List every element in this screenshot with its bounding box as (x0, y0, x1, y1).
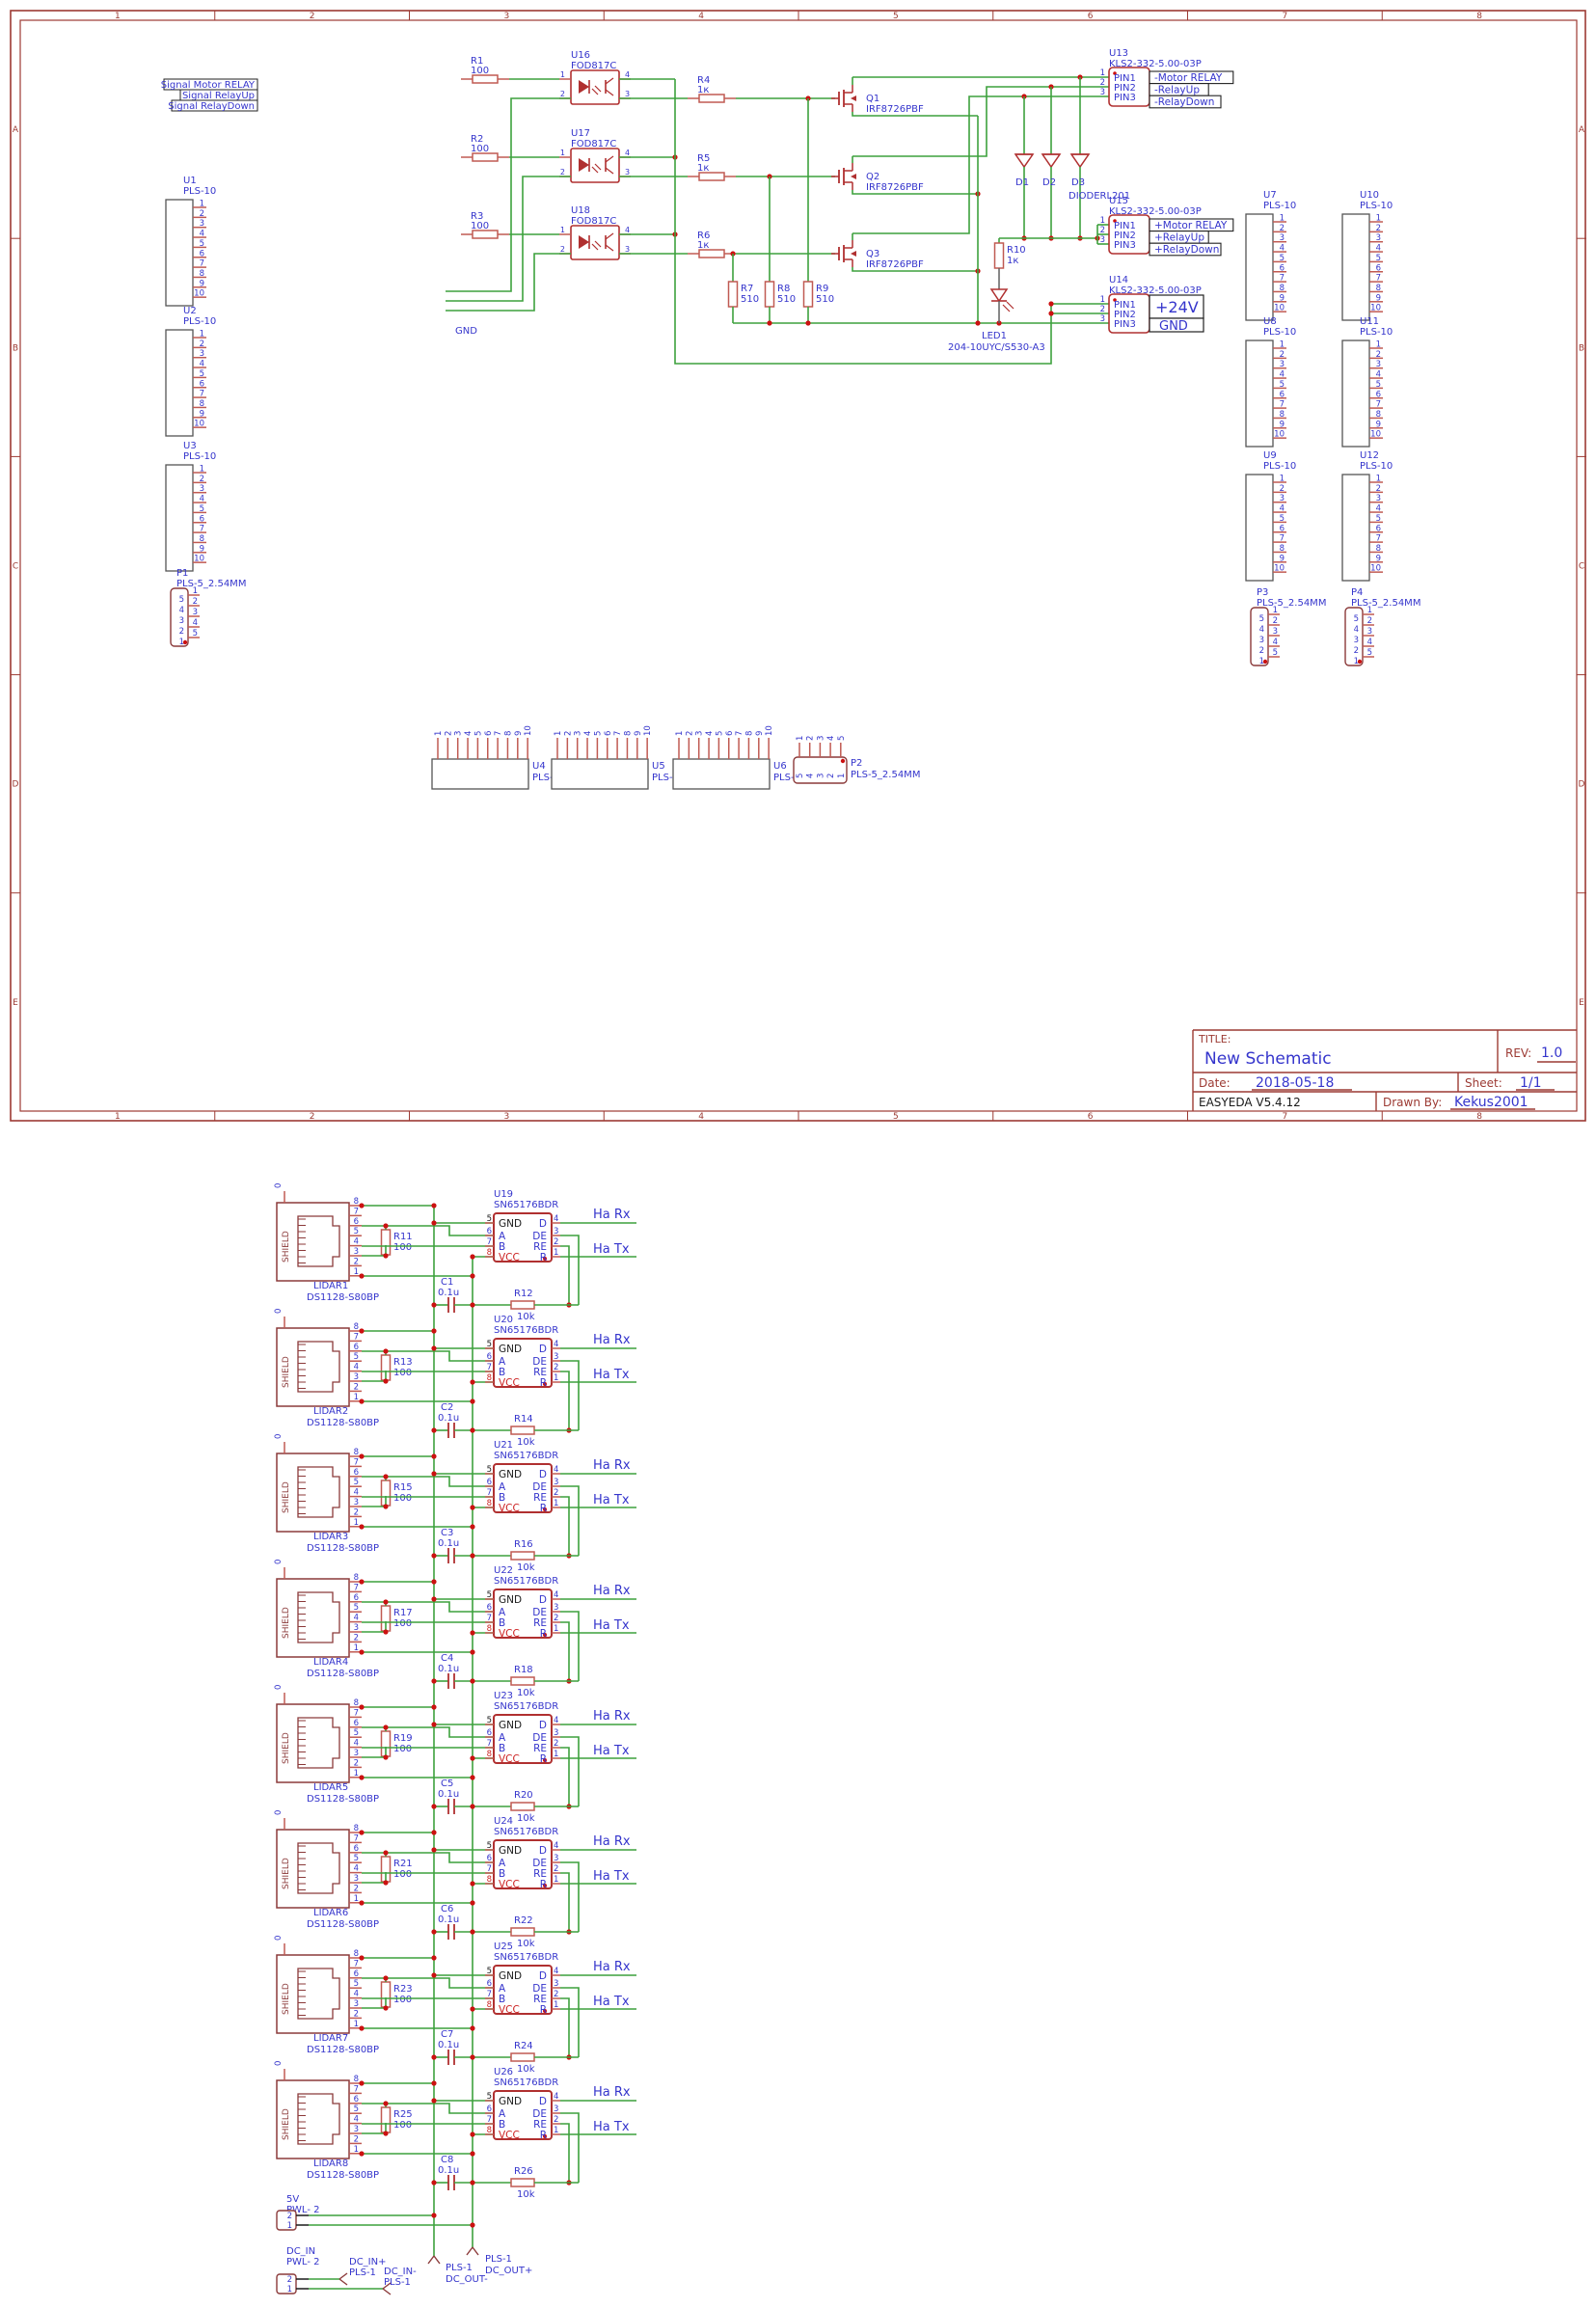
pin-number: 8 (487, 2000, 492, 2010)
pin-number: 1 (560, 149, 565, 157)
pin-number: 3 (354, 1874, 359, 1884)
pin-number: 1 (1100, 295, 1105, 305)
value: 100 (393, 1242, 412, 1253)
resistor-R4[interactable]: R41к (688, 75, 736, 102)
pin-number: 8 (744, 731, 754, 736)
pin-number: 7 (354, 1207, 359, 1216)
shield-label: SHIELD (282, 1983, 291, 2015)
pin-name: GND (499, 1469, 522, 1480)
junction-dot (1048, 301, 1053, 306)
mosfet-Q2[interactable]: Q2IRF8726PBF (831, 163, 924, 193)
ref-des: U1 (183, 176, 197, 186)
pin-number: 1 (354, 1894, 359, 1904)
junction-dot (431, 1972, 436, 1977)
pin-name: VCC (499, 1753, 520, 1765)
junction-dot (470, 1804, 474, 1808)
pin-name: D (539, 1469, 547, 1480)
pin-number: 3 (1280, 233, 1285, 243)
terminal-block-U14[interactable]: U14KLS2-332-5.00-03P1PIN12PIN23PIN3+24VG… (1100, 275, 1204, 334)
ref-des: U5 (652, 761, 665, 772)
pin-number: 6 (1376, 390, 1381, 399)
pin-number: 4 (625, 149, 630, 157)
pin-number: 0 (274, 2061, 284, 2066)
transceiver-U19[interactable]: U19SN65176BDR5GND6A7B8VCC4D3DE2RE1R (485, 1189, 560, 1263)
junction-dot (431, 1328, 436, 1333)
pin-number: 3 (625, 245, 630, 254)
pin-number: 3 (554, 1478, 558, 1487)
ref-des: R21 (393, 1859, 413, 1869)
signal-net-label: Signal Motor RELAY (161, 80, 256, 91)
ref-des: Q1 (866, 94, 879, 104)
connector-U1[interactable]: U1PLS-1012345678910 (166, 176, 216, 306)
part-number: DS1128-S80BP (307, 1919, 379, 1930)
date-value: 2018-05-18 (1256, 1075, 1334, 1091)
wire (446, 98, 571, 291)
part-number: SN65176BDR (494, 1200, 558, 1210)
pin-number: 1 (554, 2126, 558, 2135)
rj45-LIDAR7[interactable]: SHIELD087654321LIDAR7DS1128-S80BP (274, 1936, 379, 2055)
ref-des: U4 (532, 761, 546, 772)
pin-number: 2 (1376, 350, 1381, 360)
connector-U4[interactable]: 12345678910U4PLS-10 (432, 725, 565, 789)
pin-number: 5 (1273, 648, 1278, 658)
frame-col-label: 2 (310, 12, 315, 21)
capacitor-C3[interactable]: C30.1u (438, 1528, 459, 1563)
pin-number: 7 (354, 2084, 359, 2094)
junction-dot (383, 1975, 388, 1980)
pin-number: 2 (806, 736, 816, 741)
resistor-R14[interactable]: R1410k (511, 1414, 535, 1448)
connector-U2[interactable]: U2PLS-1012345678910 (166, 306, 216, 436)
wire (560, 1371, 569, 1430)
pin-number: 5 (200, 504, 204, 514)
pin-number: 10 (1370, 430, 1381, 440)
capacitor-C7[interactable]: C70.1u (438, 2029, 459, 2065)
junction-dot (431, 1427, 436, 1432)
resistor-R7[interactable]: R7510 (729, 282, 760, 307)
pin-number: 3 (200, 219, 204, 229)
terminal-block-U13[interactable]: U13KLS2-332-5.00-03P1PIN12PIN23PIN3-Moto… (1100, 48, 1233, 108)
pin-number: 4 (200, 495, 204, 504)
pin-name: D (539, 2096, 547, 2107)
ref-des: P3 (1257, 587, 1268, 598)
junction-dot (470, 1379, 474, 1384)
pin-number: 8 (200, 534, 204, 544)
pin-number-inner: 3 (1259, 636, 1264, 645)
lidar-channel-7: SHIELD087654321LIDAR7DS1128-S80BPR23100U… (274, 1936, 636, 2075)
pin-number: 5 (487, 1716, 492, 1725)
pin-number: 3 (816, 736, 825, 741)
ref-des: U24 (494, 1816, 513, 1827)
capacitor-C4[interactable]: C40.1u (438, 1653, 459, 1689)
resistor-R26[interactable]: R2610k (511, 2166, 535, 2200)
pin-number: 1 (354, 1518, 359, 1528)
pin-number: 2 (554, 1864, 558, 1874)
connector-U5[interactable]: 12345678910U5PLS-10 (552, 725, 685, 789)
pin-number: 2 (1273, 616, 1278, 626)
pin-number: 4 (1376, 370, 1381, 380)
value: 100 (471, 66, 489, 76)
pin-number: 6 (1376, 524, 1381, 533)
capacitor-C6[interactable]: C60.1u (438, 1904, 459, 1940)
shield-label: SHIELD (282, 1231, 291, 1263)
pin-number: 7 (487, 1488, 492, 1498)
transceiver-U20[interactable]: U20SN65176BDR5GND6A7B8VCC4D3DE2RE1R (485, 1315, 560, 1389)
pin-name: GND (499, 1344, 522, 1355)
connector-P2[interactable]: 1524334251P2PLS-5_2.54MM (794, 736, 920, 783)
diode-symbol[interactable] (1071, 154, 1089, 167)
value: 1к (697, 163, 709, 174)
rj45-LIDAR2[interactable]: SHIELD087654321LIDAR2DS1128-S80BP (274, 1309, 379, 1428)
pin-number: 4 (1280, 370, 1285, 380)
pin-name: GND (499, 1218, 522, 1230)
connector-U8[interactable]: U8PLS-1012345678910 (1246, 316, 1296, 447)
pin-number: 4 (354, 2115, 359, 2125)
shield-label: SHIELD (282, 1481, 291, 1513)
pin-number: 7 (487, 1363, 492, 1372)
value: 510 (816, 294, 834, 305)
wire (560, 1998, 569, 2057)
diode-symbol[interactable] (1042, 154, 1060, 167)
connector-U10[interactable]: U10PLS-1012345678910 (1342, 190, 1393, 320)
ref-des: R14 (514, 1414, 533, 1425)
connector-U7[interactable]: U7PLS-1012345678910 (1246, 190, 1296, 320)
signal-net-label: Signal RelayUp (182, 91, 255, 101)
pin-name: D (539, 1344, 547, 1355)
ref-des: P2 (851, 758, 862, 769)
resistor-R9[interactable]: R9510 (804, 282, 835, 307)
junction-dot (767, 320, 771, 325)
pin-number: 7 (487, 2115, 492, 2125)
lidar-channel-5: SHIELD087654321LIDAR5DS1128-S80BPR19100U… (274, 1685, 636, 1824)
capacitor-C8[interactable]: C80.1u (438, 2155, 459, 2190)
pin-number: 3 (354, 1498, 359, 1507)
value: 0.1u (438, 1664, 459, 1674)
part-number: DS1128-S80BP (307, 1669, 379, 1679)
transceiver-U23[interactable]: U23SN65176BDR5GND6A7B8VCC4D3DE2RE1R (485, 1691, 560, 1765)
pin-number: 3 (200, 349, 204, 359)
pin-number-inner: 4 (806, 774, 816, 778)
frame-col-label-bottom: 1 (115, 1112, 121, 1122)
pin-number: 2 (1280, 484, 1285, 494)
pin-number: 8 (354, 1949, 359, 1959)
pin-number: 1 (1100, 216, 1105, 226)
pin-number: 2 (354, 2134, 359, 2144)
transceiver-U25[interactable]: U25SN65176BDR5GND6A7B8VCC4D3DE2RE1R (485, 1941, 560, 2016)
pin-number: 1 (796, 736, 805, 741)
ref-des: R25 (393, 2109, 413, 2120)
transceiver-U24[interactable]: U24SN65176BDR5GND6A7B8VCC4D3DE2RE1R (485, 1816, 560, 1890)
pin-number: 0 (274, 1560, 284, 1564)
part-number: SN65176BDR (494, 1701, 558, 1712)
junction-dot (431, 1955, 436, 1960)
junction-dot (431, 1722, 436, 1726)
pin-number: 3 (554, 2104, 558, 2114)
junction-dot (359, 1775, 364, 1779)
net-label-rx: Ha Rx (593, 1584, 631, 1598)
lidar-channel-8: SHIELD087654321LIDAR8DS1128-S80BPR25100U… (274, 2061, 636, 2200)
pin-number-inner: 3 (179, 616, 184, 626)
pin-number: 6 (354, 1217, 359, 1227)
pin-number: 1 (560, 226, 565, 234)
ref-des: C1 (441, 1277, 453, 1288)
part-number: DS1128-S80BP (307, 2170, 379, 2181)
junction-dot (470, 1427, 474, 1432)
connector-field: U1PLS-1012345678910U2PLS-1012345678910U3… (166, 176, 1420, 789)
ref-des: U7 (1263, 190, 1277, 201)
resistor-R1[interactable]: R1100 (461, 56, 509, 83)
pin-number: 2 (354, 1257, 359, 1266)
gnd-net-label: GND (455, 326, 477, 337)
pin-number: 10 (194, 420, 204, 429)
junction-dot (359, 1955, 364, 1960)
diode-symbol[interactable] (1015, 154, 1033, 167)
pin-number: 5 (200, 369, 204, 379)
rj45-LIDAR4[interactable]: SHIELD087654321LIDAR4DS1128-S80BP (274, 1560, 379, 1679)
lidar-channel-3: SHIELD087654321LIDAR3DS1128-S80BPR15100U… (274, 1434, 636, 1573)
pin-number: 8 (1280, 410, 1285, 420)
mosfet-Q3[interactable]: Q3IRF8726PBF (831, 240, 924, 270)
frame-row-label-right: D (1579, 780, 1585, 790)
optocoupler-U17[interactable]: U17FOD817C1243 (559, 128, 631, 182)
optocoupler-U16[interactable]: U16FOD817C1243 (559, 50, 631, 104)
pin-number: 8 (200, 399, 204, 409)
pin-name: GND (499, 2096, 522, 2107)
junction-dot (470, 1254, 474, 1259)
junction-dot (431, 1553, 436, 1558)
signal-labels: Signal Motor RELAYSignal RelayUpSignal R… (161, 79, 257, 112)
rj45-LIDAR3[interactable]: SHIELD087654321LIDAR3DS1128-S80BP (274, 1434, 379, 1554)
pin-number: 8 (1280, 544, 1285, 554)
part-number: PLS-5_2.54MM (851, 770, 920, 780)
lidar-channel-2: SHIELD087654321LIDAR2DS1128-S80BPR13100U… (274, 1309, 636, 1448)
optocoupler-U18[interactable]: U18FOD817C1243 (559, 205, 631, 259)
resistor-R3[interactable]: R3100 (461, 211, 509, 238)
rj45-LIDAR8[interactable]: SHIELD087654321LIDAR8DS1128-S80BP (274, 2061, 379, 2181)
ref-des: R7 (741, 284, 753, 294)
pin-number: 5 (354, 1352, 359, 1362)
ref-des: U9 (1263, 450, 1277, 461)
ref-des: R23 (393, 1984, 413, 1995)
pin-number: 7 (1280, 534, 1285, 544)
transceiver-U26[interactable]: U26SN65176BDR5GND6A7B8VCC4D3DE2RE1R (485, 2067, 560, 2141)
pin-name: D (539, 1720, 547, 1731)
junction-dot (383, 1223, 388, 1228)
value: 0.1u (438, 1914, 459, 1925)
pin-number: 6 (604, 731, 613, 736)
junction-dot (431, 1596, 436, 1601)
pin-number: 7 (200, 390, 204, 399)
junction-dot (359, 1398, 364, 1403)
resistor-R12[interactable]: R1210k (511, 1289, 535, 1322)
transceiver-U22[interactable]: U22SN65176BDR5GND6A7B8VCC4D3DE2RE1R (485, 1565, 560, 1640)
connector-P1[interactable]: P1PLS-5_2.54MM1524334251 (171, 568, 246, 647)
part-number: SN65176BDR (494, 1952, 558, 1963)
pin-number: 8 (354, 1573, 359, 1583)
pin-name: VCC (499, 1503, 520, 1514)
pin-number: 4 (1376, 504, 1381, 514)
frame-col-label-bottom: 8 (1476, 1112, 1482, 1122)
net-label: GND (1159, 319, 1188, 334)
pin-number: 2 (444, 731, 453, 736)
pin-number: 5 (1367, 648, 1372, 658)
ref-des: R19 (393, 1733, 413, 1744)
frame-col-label: 5 (893, 12, 899, 21)
junction-dot (431, 1471, 436, 1476)
connector-U12[interactable]: U12PLS-1012345678910 (1342, 450, 1393, 581)
capacitor-C1[interactable]: C10.1u (438, 1277, 459, 1313)
pin-number: 4 (554, 1967, 558, 1976)
ref-des: C3 (441, 1528, 453, 1538)
pin-number: 5 (487, 1340, 492, 1349)
pin-number: 2 (554, 1363, 558, 1372)
resistor-R22[interactable]: R2210k (511, 1915, 535, 1949)
rj45-LIDAR6[interactable]: SHIELD087654321LIDAR6DS1128-S80BP (274, 1810, 379, 1930)
pin-number: 7 (487, 1864, 492, 1874)
junction-dot (383, 1348, 388, 1353)
pin-number: 2 (287, 2212, 292, 2221)
pin-number: 2 (193, 597, 198, 607)
junction-dot (470, 2006, 474, 2011)
connector-U3[interactable]: U3PLS-1012345678910 (166, 441, 216, 571)
mosfet-Q1[interactable]: Q1IRF8726PBF (831, 85, 924, 115)
pin-number-inner: 3 (1354, 636, 1359, 645)
pin-number: 3 (354, 1999, 359, 2009)
pin-number: 1 (554, 1750, 558, 1759)
junction-dot (359, 1704, 364, 1709)
pin-number: 6 (354, 1719, 359, 1728)
pin-name: PIN3 (1114, 93, 1136, 103)
connector-U11[interactable]: U11PLS-1012345678910 (1342, 316, 1393, 447)
resistor-R2[interactable]: R2100 (461, 134, 509, 161)
net-label-tx: Ha Tx (593, 1995, 630, 2009)
junction-dot (470, 2132, 474, 2136)
pin-number: 1 (354, 2145, 359, 2155)
net-label-rx: Ha Rx (593, 1458, 631, 1473)
part-number: IRF8726PBF (866, 259, 924, 270)
pin-number: 5 (354, 1728, 359, 1738)
pin-number-inner: 2 (179, 627, 184, 637)
pin-number: 3 (354, 1372, 359, 1382)
part-number: 204-10UYC/S530-A3 (948, 342, 1045, 353)
resistor-R8[interactable]: R8510 (766, 282, 797, 307)
net-label-tx: Ha Tx (593, 1242, 630, 1257)
ref-des: U2 (183, 306, 197, 316)
ref-des: LED1 (982, 331, 1007, 341)
pin-number: 10 (194, 289, 204, 299)
terminal-block-U15[interactable]: U15KLS2-332-5.00-03P1PIN12PIN23PIN3+Moto… (1100, 196, 1233, 256)
rj45-LIDAR5[interactable]: SHIELD087654321LIDAR5DS1128-S80BP (274, 1685, 379, 1805)
value: 0.1u (438, 1538, 459, 1549)
pin-number: 4 (200, 360, 204, 369)
ref-des: C2 (441, 1402, 453, 1413)
pin-number: 2 (1376, 224, 1381, 233)
pin-name: R (540, 1503, 547, 1514)
frame-row-label: B (13, 343, 18, 353)
resistor-R6[interactable]: R61к (688, 231, 736, 258)
ref-des: U8 (1263, 316, 1277, 327)
junction-dot (431, 2054, 436, 2059)
pin-number: 4 (354, 1990, 359, 1999)
pin-number: 6 (354, 1343, 359, 1352)
resistor-R20[interactable]: R2010k (511, 1790, 535, 1824)
wire (560, 1873, 569, 1932)
pin-number: 3 (1376, 360, 1381, 369)
rj45-LIDAR1[interactable]: SHIELD087654321LIDAR1DS1128-S80BP (274, 1183, 379, 1303)
connector-P3[interactable]: P3PLS-5_2.54MM1524334251 (1251, 587, 1326, 666)
pin-number: 7 (200, 259, 204, 269)
pin-number: 5 (354, 1979, 359, 1989)
pin-number: 9 (200, 544, 204, 554)
junction-dot (470, 1900, 474, 1905)
net-label-tx: Ha Tx (593, 1744, 630, 1758)
pin-name: R (540, 1753, 547, 1765)
part-number: SN65176BDR (494, 1325, 558, 1336)
resistor-R10[interactable]: R101к (995, 243, 1026, 268)
connector-U9[interactable]: U9PLS-1012345678910 (1246, 450, 1296, 581)
resistor-R5[interactable]: R51к (688, 153, 736, 180)
led-LED1[interactable]: LED1204-10UYC/S530-A3 (948, 289, 1045, 353)
pin-number: 2 (1100, 78, 1105, 88)
pin-number-inner: 5 (1259, 614, 1264, 624)
net-label: +RelayUp (1154, 232, 1204, 244)
pin-number: 4 (554, 2092, 558, 2102)
part-number: PLS-10 (1360, 461, 1393, 472)
transceiver-U21[interactable]: U21SN65176BDR5GND6A7B8VCC4D3DE2RE1R (485, 1440, 560, 1514)
pin-number: 7 (487, 1614, 492, 1623)
resistor-R18[interactable]: R1810k (511, 1665, 535, 1698)
frame-col-label-bottom: 6 (1088, 1112, 1094, 1122)
connector-P4[interactable]: P4PLS-5_2.54MM1524334251 (1345, 587, 1420, 666)
resistor-R24[interactable]: R2410k (511, 2041, 535, 2075)
value: 0.1u (438, 1413, 459, 1424)
value: 0.1u (438, 2040, 459, 2050)
capacitor-C2[interactable]: C20.1u (438, 1402, 459, 1438)
pin-number: 7 (494, 731, 503, 736)
junction-dot (383, 1504, 388, 1508)
junction-dot (805, 320, 810, 325)
connector-DC_IN[interactable]: DC_INPWL- 221 (277, 2246, 319, 2294)
pin-number: 4 (200, 230, 204, 239)
pin-number: 8 (1376, 410, 1381, 420)
part-number: PLS-5_2.54MM (1351, 598, 1420, 609)
pin-number: 2 (354, 2009, 359, 2019)
pin-number: 3 (1376, 233, 1381, 243)
junction-dot (383, 1754, 388, 1759)
capacitor-C5[interactable]: C50.1u (438, 1779, 459, 1814)
value: 100 (393, 1995, 412, 2005)
shield-label: SHIELD (282, 1607, 291, 1639)
pin-name: R (540, 2130, 547, 2141)
pin-number: 3 (354, 1749, 359, 1758)
resistor-R16[interactable]: R1610k (511, 1539, 535, 1573)
pin-number: 1 (1280, 340, 1285, 350)
schematic-canvas[interactable]: 1122334455667788AABBCCDDEETITLE:New Sche… (0, 0, 1596, 2308)
pin-number: 3 (554, 1728, 558, 1738)
pin-number-inner: 4 (179, 606, 184, 615)
ref-des: R8 (777, 284, 790, 294)
pin-number: 2 (1100, 305, 1105, 314)
frame-col-label-bottom: 3 (504, 1112, 510, 1122)
pin-name: D (539, 1970, 547, 1982)
net-label-tx: Ha Tx (593, 1368, 630, 1382)
connector-U6[interactable]: 12345678910U6PLS-10 (673, 725, 806, 789)
pin-number: 2 (354, 1507, 359, 1517)
ref-des: D3 (1071, 177, 1085, 188)
pin-number: 8 (354, 1698, 359, 1708)
part-number: PLS-1 (446, 2263, 473, 2273)
pin-number: 5 (1376, 254, 1381, 263)
